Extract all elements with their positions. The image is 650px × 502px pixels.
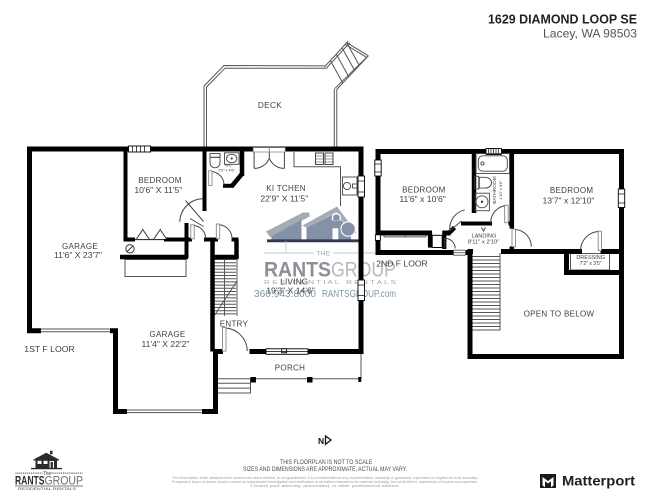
svg-text:13'7" x 12'10": 13'7" x 12'10" [543, 195, 595, 205]
svg-text:N: N [318, 436, 324, 446]
svg-text:BEDROOM: BEDROOM [138, 176, 181, 185]
svg-text:Consult your attorney, account: Consult your attorney, accountant, or ot… [250, 483, 400, 488]
svg-text:WC: WC [225, 162, 232, 167]
svg-text:BEDROOM: BEDROOM [402, 186, 445, 195]
svg-text:BEDROOM: BEDROOM [550, 186, 593, 195]
svg-text:19'3" X 14'6": 19'3" X 14'6" [266, 286, 315, 296]
svg-text:10'6" X 11'5": 10'6" X 11'5" [134, 185, 182, 195]
svg-text:2ND F LOOR: 2ND F LOOR [376, 259, 428, 269]
svg-text:THE: THE [316, 251, 331, 258]
svg-text:GARAGE: GARAGE [149, 330, 185, 339]
svg-text:Matterport: Matterport [562, 474, 636, 489]
svg-text:1ST F LOOR: 1ST F LOOR [24, 344, 75, 354]
svg-text:2'6" x 4'6": 2'6" x 4'6" [218, 169, 235, 173]
svg-text:Lacey, WA 98503: Lacey, WA 98503 [543, 27, 637, 40]
svg-text:11'4" X 22'2": 11'4" X 22'2" [142, 339, 190, 349]
svg-text:DECK: DECK [258, 101, 282, 110]
svg-text:LANDING: LANDING [471, 233, 496, 239]
svg-text:11'6" X 23'7": 11'6" X 23'7" [54, 250, 102, 260]
svg-text:PORCH: PORCH [275, 364, 305, 373]
svg-text:RESIDENTIAL RENTALS: RESIDENTIAL RENTALS [18, 486, 76, 491]
svg-text:THIS FLOORPLAN IS NOT TO SCALE: THIS FLOORPLAN IS NOT TO SCALE [280, 459, 373, 466]
svg-text:11'6" x 10'6": 11'6" x 10'6" [399, 194, 446, 204]
svg-text:4'10" x 9'6": 4'10" x 9'6" [498, 180, 503, 200]
svg-text:1629 DIAMOND LOOP SE: 1629 DIAMOND LOOP SE [488, 12, 637, 27]
svg-text:OPEN TO BELOW: OPEN TO BELOW [524, 310, 595, 319]
svg-text:8'11" x 2'10": 8'11" x 2'10" [468, 239, 499, 245]
svg-text:7'2" x 3'5": 7'2" x 3'5" [580, 261, 602, 267]
svg-text:22'9" X 11'5": 22'9" X 11'5" [260, 194, 308, 204]
svg-text:ENTRY: ENTRY [220, 320, 249, 329]
svg-text:KI TCHEN: KI TCHEN [266, 184, 306, 193]
svg-text:SIZES AND DIMENSIONS ARE APPRO: SIZES AND DIMENSIONS ARE APPROXIMATE, AC… [243, 466, 407, 473]
